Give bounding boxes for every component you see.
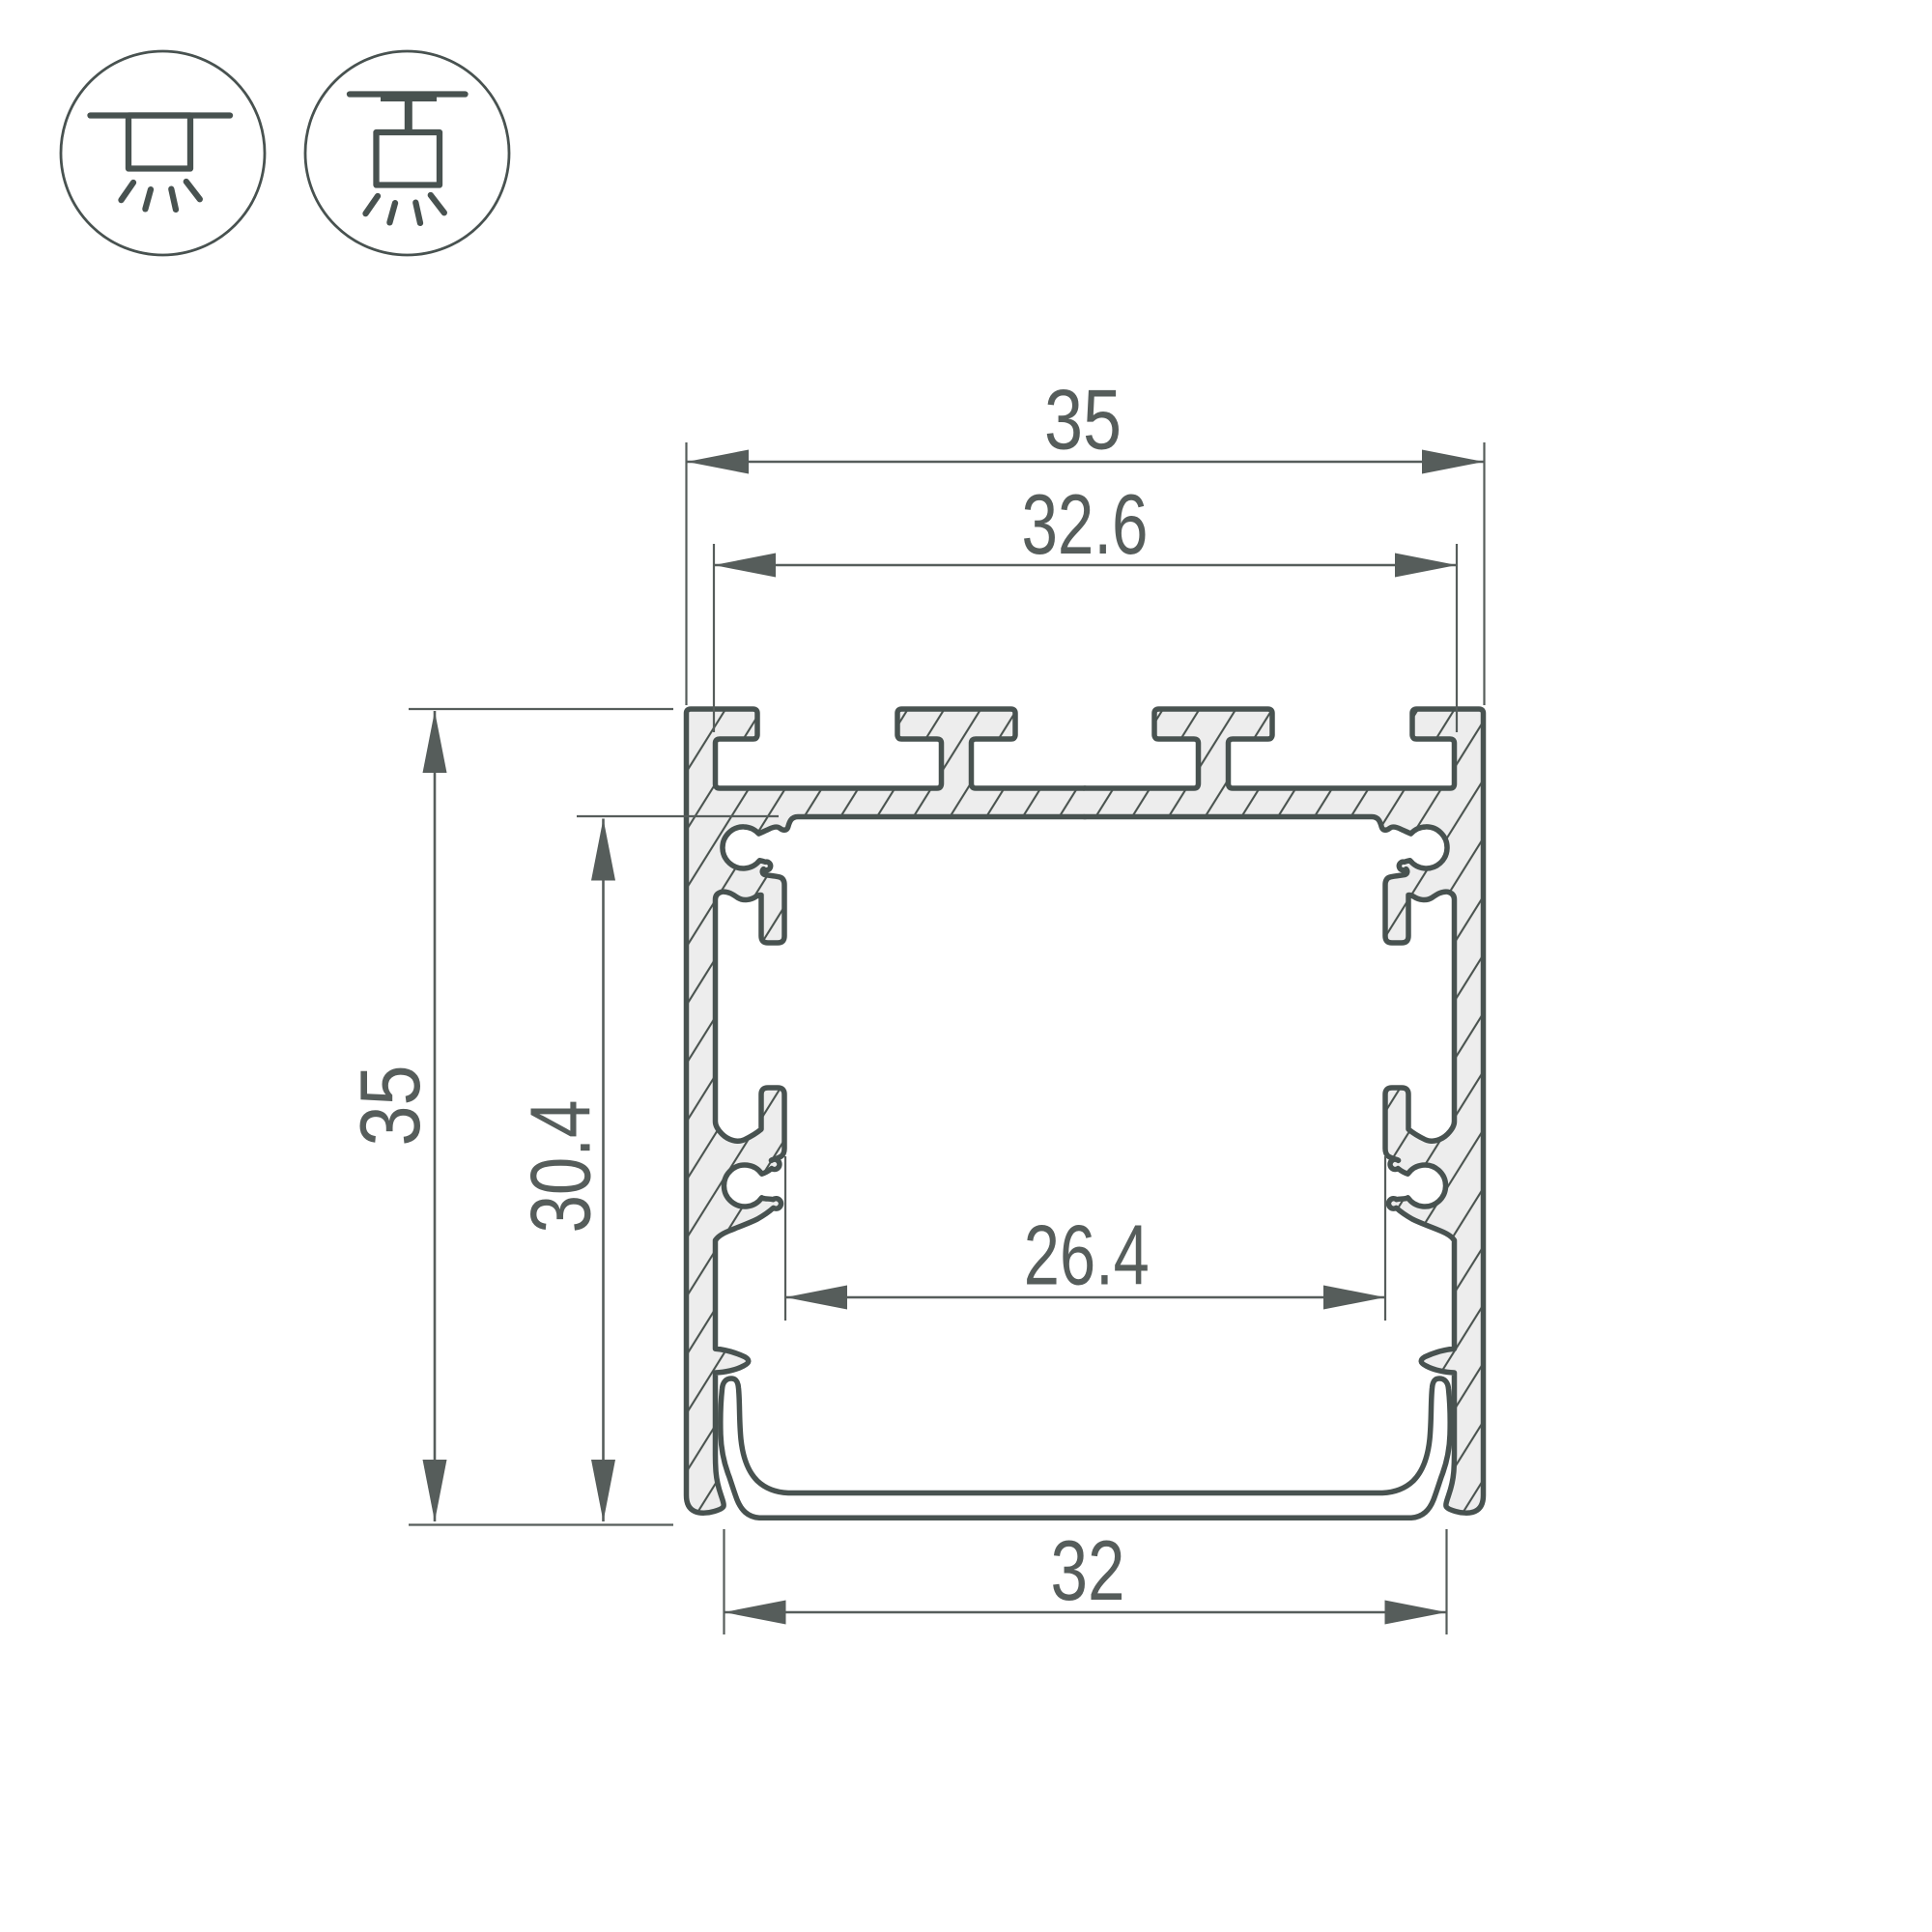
svg-text:35: 35 (1044, 372, 1122, 468)
svg-text:32.6: 32.6 (1022, 476, 1149, 572)
svg-text:26.4: 26.4 (1024, 1207, 1150, 1303)
svg-text:35: 35 (342, 1065, 438, 1147)
svg-text:30.4: 30.4 (513, 1100, 609, 1234)
svg-text:32: 32 (1051, 1522, 1125, 1618)
